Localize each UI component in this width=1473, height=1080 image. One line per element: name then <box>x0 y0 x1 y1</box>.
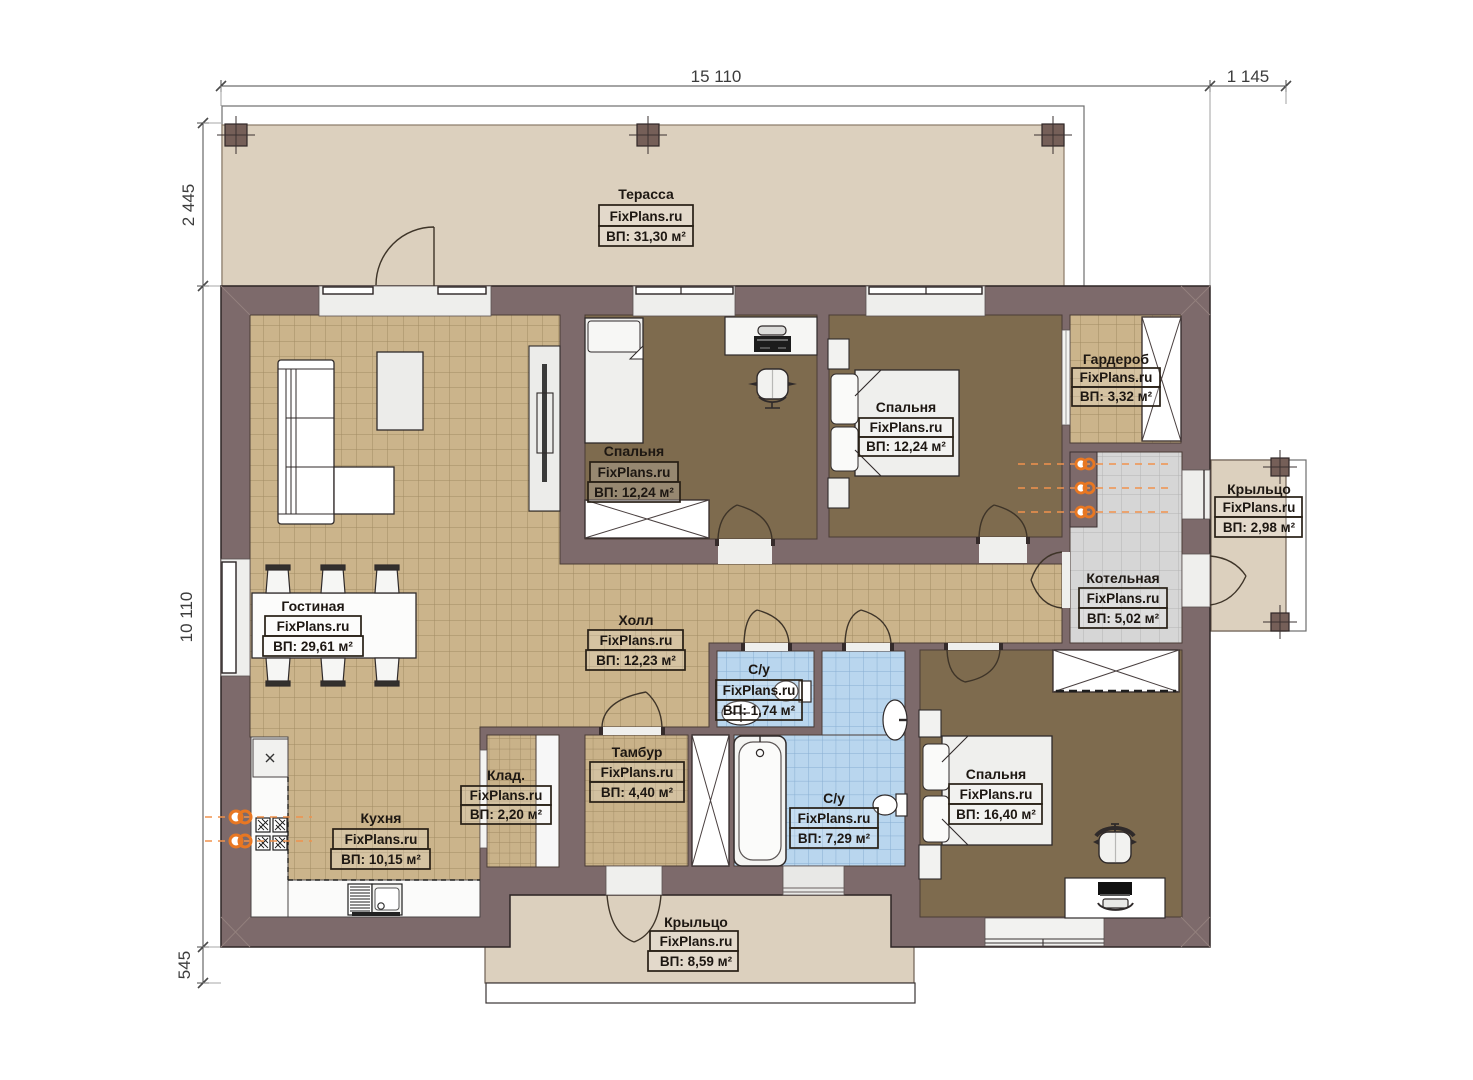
svg-text:ВП: 7,29 м²: ВП: 7,29 м² <box>798 831 871 846</box>
svg-text:ВП: 5,02 м²: ВП: 5,02 м² <box>1087 611 1160 626</box>
svg-text:С/у: С/у <box>748 661 770 677</box>
svg-text:Холл: Холл <box>618 612 653 628</box>
svg-text:ВП: 12,24 м²: ВП: 12,24 м² <box>594 485 674 500</box>
svg-text:Спальня: Спальня <box>876 399 936 415</box>
svg-text:FixPlans.ru: FixPlans.ru <box>470 788 543 803</box>
svg-text:15 110: 15 110 <box>691 67 742 86</box>
svg-text:ВП: 1,74 м²: ВП: 1,74 м² <box>723 703 796 718</box>
svg-text:Котельная: Котельная <box>1086 570 1159 586</box>
svg-text:2 445: 2 445 <box>179 184 198 227</box>
svg-text:FixPlans.ru: FixPlans.ru <box>723 683 796 698</box>
svg-text:FixPlans.ru: FixPlans.ru <box>600 633 673 648</box>
svg-text:FixPlans.ru: FixPlans.ru <box>601 765 674 780</box>
svg-text:FixPlans.ru: FixPlans.ru <box>870 420 943 435</box>
svg-text:FixPlans.ru: FixPlans.ru <box>660 934 733 949</box>
svg-text:Гостиная: Гостиная <box>281 598 344 614</box>
svg-text:Крыльцо: Крыльцо <box>1227 481 1291 497</box>
svg-text:ВП: 2,98 м²: ВП: 2,98 м² <box>1223 520 1296 535</box>
svg-text:Спальня: Спальня <box>966 766 1026 782</box>
svg-text:ВП: 10,15 м²: ВП: 10,15 м² <box>341 852 421 867</box>
svg-text:Кухня: Кухня <box>361 810 402 826</box>
svg-text:FixPlans.ru: FixPlans.ru <box>277 619 350 634</box>
svg-text:С/у: С/у <box>823 790 845 806</box>
svg-text:Тамбур: Тамбур <box>612 744 663 760</box>
svg-text:FixPlans.ru: FixPlans.ru <box>1080 370 1153 385</box>
svg-text:FixPlans.ru: FixPlans.ru <box>1087 591 1160 606</box>
svg-text:ВП: 4,40 м²: ВП: 4,40 м² <box>601 785 674 800</box>
svg-text:ВП: 2,20 м²: ВП: 2,20 м² <box>470 807 543 822</box>
svg-text:Спальня: Спальня <box>604 443 664 459</box>
svg-text:ВП: 29,61 м²: ВП: 29,61 м² <box>273 639 353 654</box>
svg-text:FixPlans.ru: FixPlans.ru <box>598 465 671 480</box>
svg-text:FixPlans.ru: FixPlans.ru <box>610 209 683 224</box>
svg-text:FixPlans.ru: FixPlans.ru <box>345 832 418 847</box>
svg-text:Терасса: Терасса <box>618 186 674 202</box>
svg-text:ВП: 3,32 м²: ВП: 3,32 м² <box>1080 389 1153 404</box>
svg-text:ВП: 31,30 м²: ВП: 31,30 м² <box>606 229 686 244</box>
svg-text:ВП: 16,40 м²: ВП: 16,40 м² <box>956 807 1036 822</box>
svg-text:Клад.: Клад. <box>487 767 525 783</box>
svg-text:ВП: 12,23 м²: ВП: 12,23 м² <box>596 653 676 668</box>
svg-text:Крыльцо: Крыльцо <box>664 914 728 930</box>
svg-text:ВП: 8,59 м²: ВП: 8,59 м² <box>660 954 733 969</box>
svg-text:FixPlans.ru: FixPlans.ru <box>960 787 1033 802</box>
svg-text:10 110: 10 110 <box>177 592 196 643</box>
svg-text:ВП: 12,24 м²: ВП: 12,24 м² <box>866 439 946 454</box>
svg-text:1 145: 1 145 <box>1227 67 1270 86</box>
svg-text:Гардероб: Гардероб <box>1083 351 1150 367</box>
svg-text:FixPlans.ru: FixPlans.ru <box>1223 500 1296 515</box>
svg-text:545: 545 <box>175 951 194 979</box>
svg-text:FixPlans.ru: FixPlans.ru <box>798 811 871 826</box>
